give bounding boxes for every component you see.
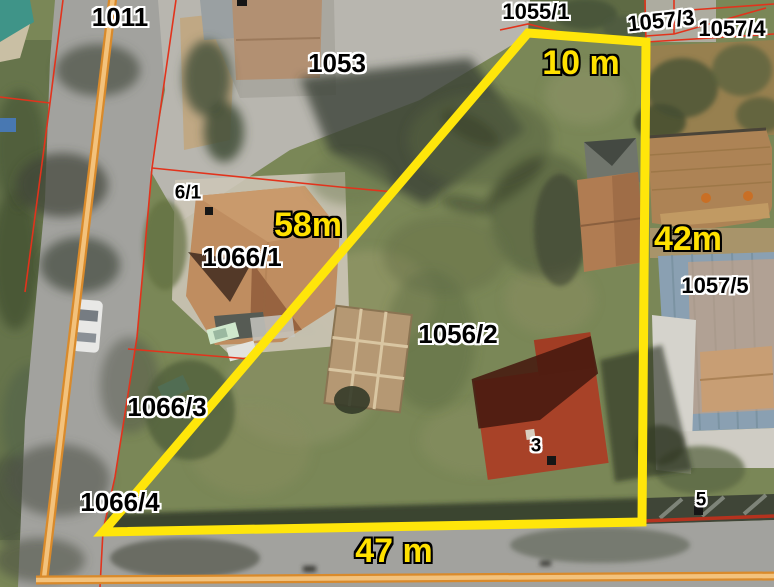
house-number-3: 3 xyxy=(531,437,542,456)
aerial-map[interactable]: 1011 1053 1055/1 1057/3 1057/4 1057/5 10… xyxy=(0,0,774,587)
building-1057-3 xyxy=(648,129,772,230)
parcel-label-1055-1: 1055/1 xyxy=(502,1,569,23)
parcel-label-1066-1: 1066/1 xyxy=(202,244,282,270)
dimension-left-58m: 58m xyxy=(274,208,342,242)
garden-dark-bush xyxy=(334,386,370,414)
parcel-label-1011: 1011 xyxy=(92,4,148,30)
parcel-label-1066-4: 1066/4 xyxy=(80,489,160,515)
dimension-right-42m: 42m xyxy=(654,222,722,256)
parcel-label-1053: 1053 xyxy=(308,50,366,76)
house-number-5: 5 xyxy=(696,491,707,510)
parcel-label-1066-3: 1066/3 xyxy=(127,394,207,420)
parcel-label-1057-4: 1057/4 xyxy=(698,18,765,40)
parcel-label-1057-5: 1057/5 xyxy=(681,275,748,297)
parcel-label-6-1: 6/1 xyxy=(175,184,201,203)
parcel-label-1056-2: 1056/2 xyxy=(418,321,498,347)
dimension-bottom-47m: 47 m xyxy=(355,534,433,568)
dimension-top-10m: 10 m xyxy=(542,46,620,80)
